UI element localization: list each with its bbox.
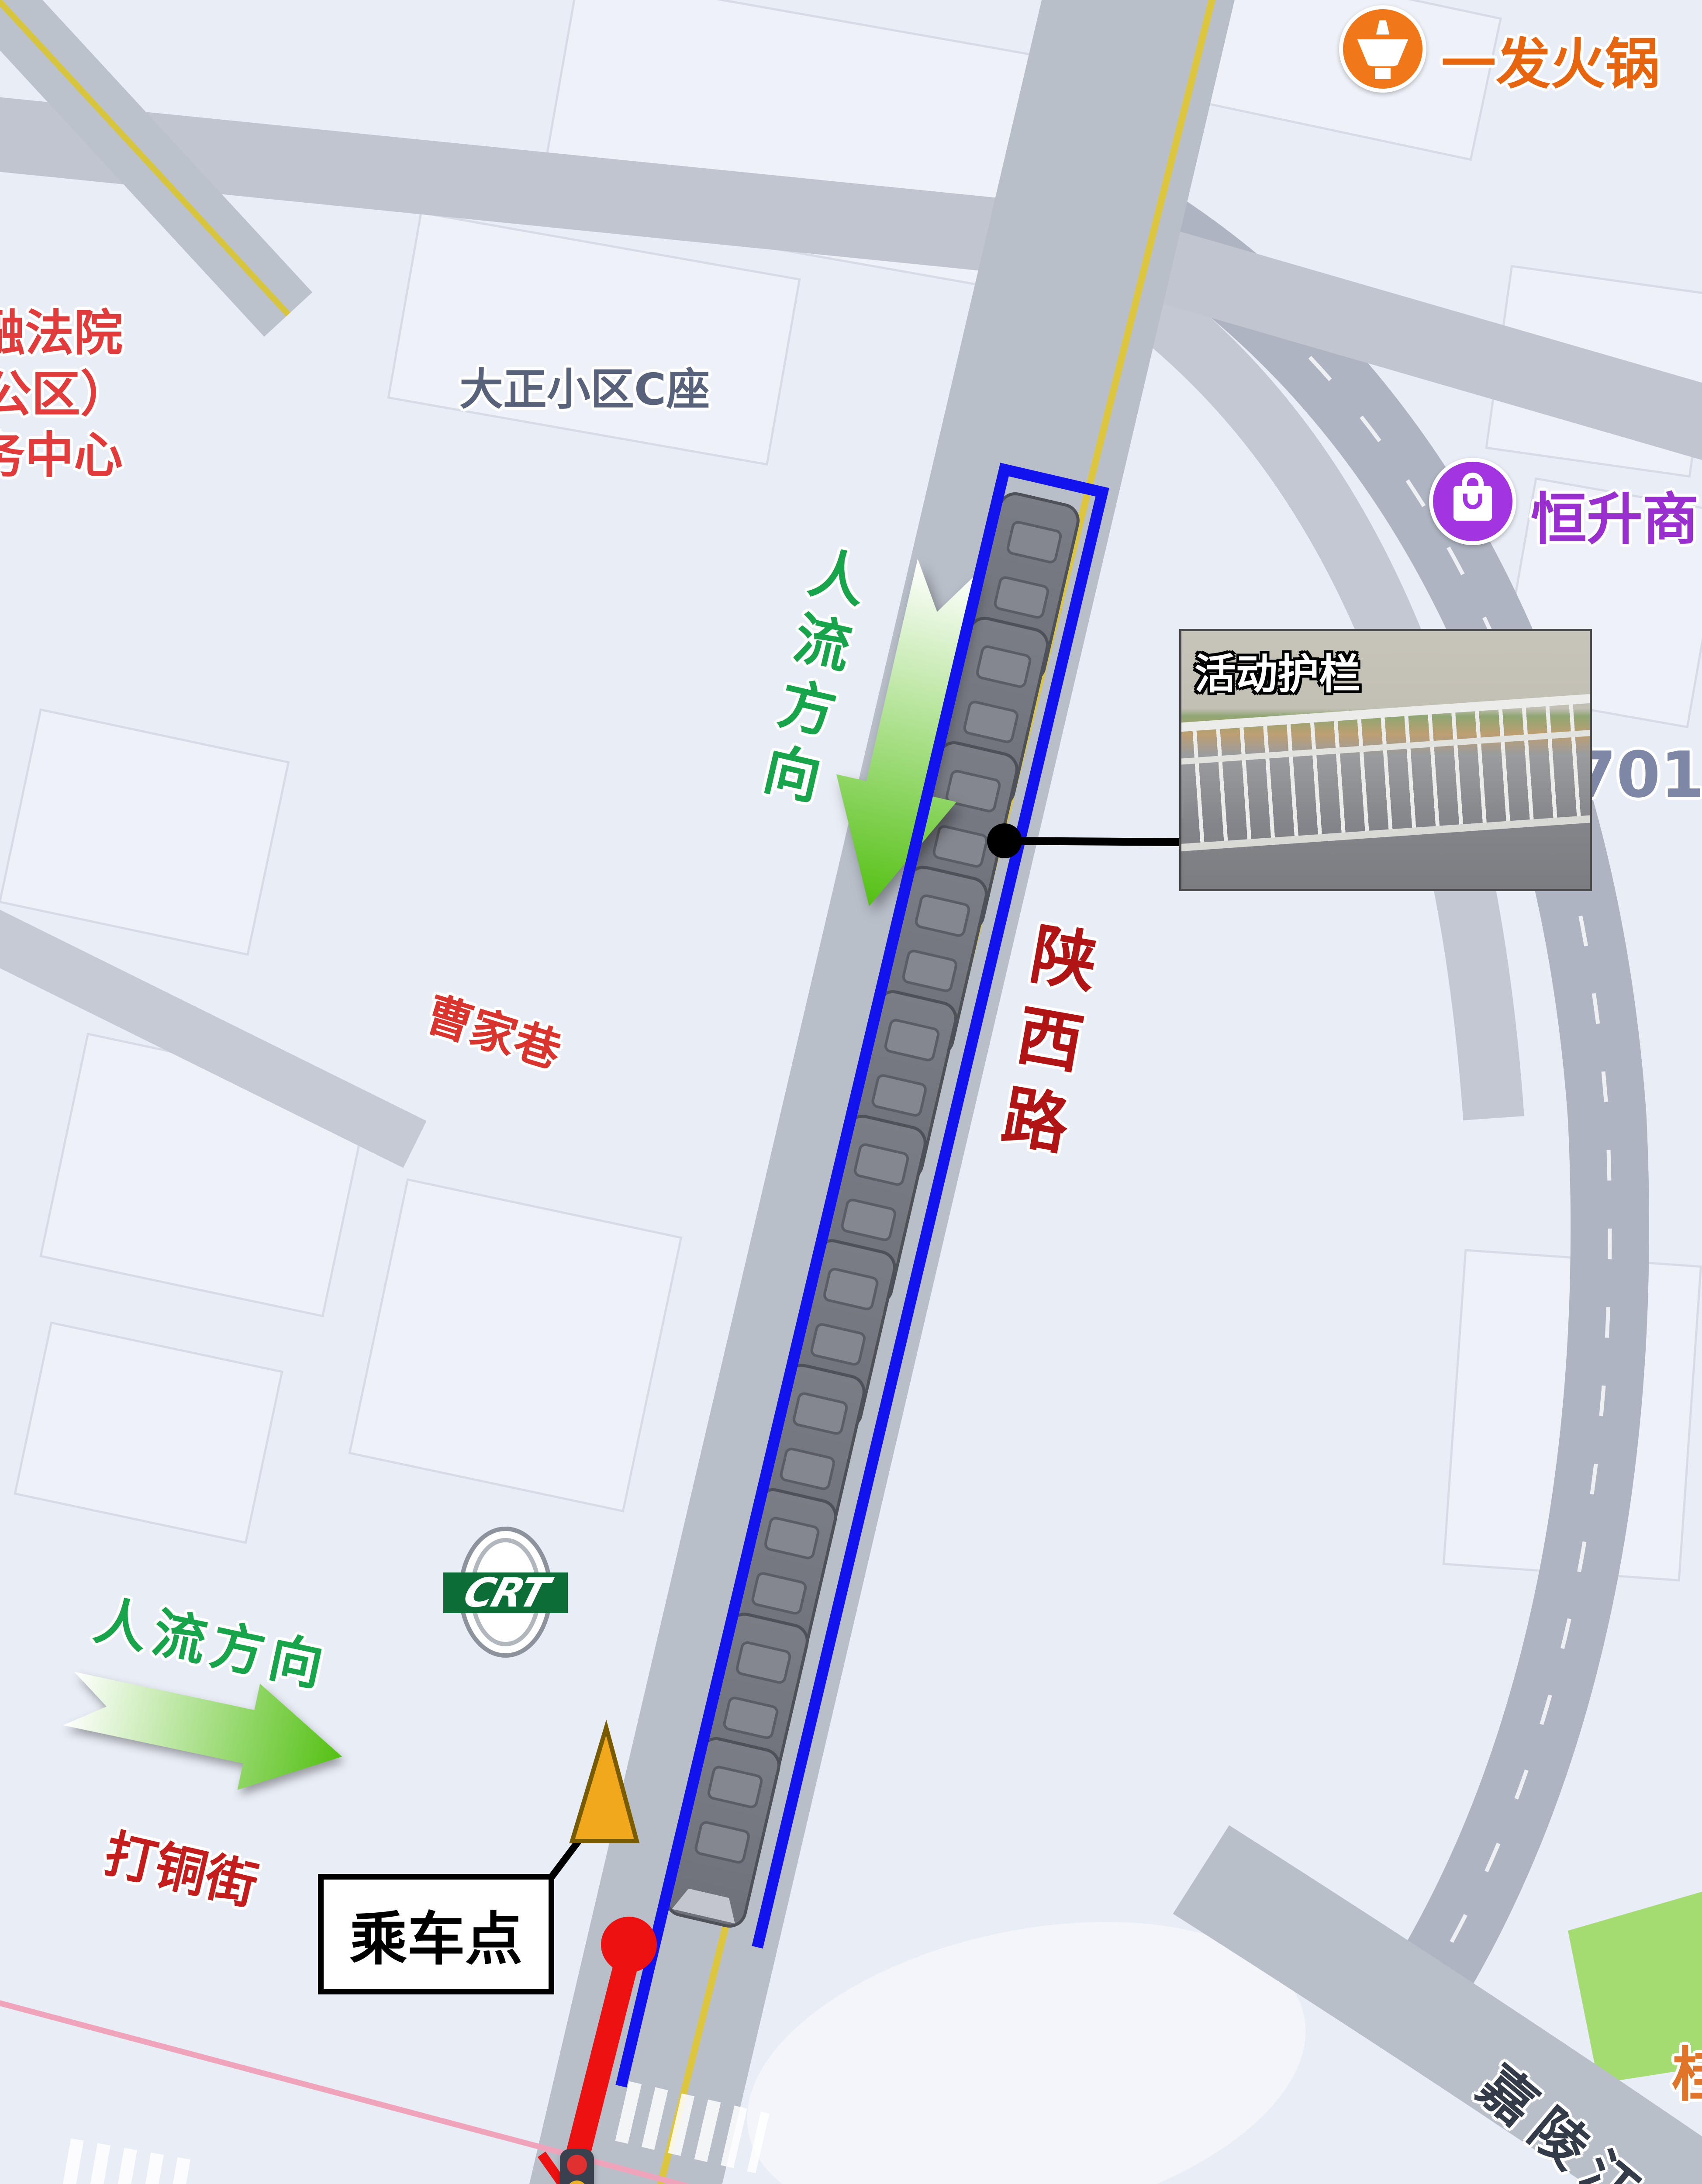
barrier-line xyxy=(621,470,1102,2086)
poi-hengsheng-label: 恒升商 xyxy=(1531,474,1699,555)
traffic-light-icon xyxy=(560,2149,594,2184)
shopping-bag-icon xyxy=(1429,458,1516,545)
barrier-callout-dot xyxy=(987,823,1022,858)
boarding-point-text: 乘车点 xyxy=(350,1893,523,1976)
hotpot-glyph xyxy=(1372,20,1394,35)
boarding-point-triangle xyxy=(572,1728,637,1841)
transit-map: CRT 融法院 公区） 务中心 大正小区C座 曹家巷 陕西路 人流方向 人流方向… xyxy=(0,0,1702,2184)
barrier-fence xyxy=(1179,694,1592,873)
annotation-overlay xyxy=(0,0,1702,2184)
barrier-photo-label: 活动护栏 xyxy=(1195,641,1360,701)
boarding-point-callout: 乘车点 xyxy=(318,1874,554,1994)
barrier-photo: 活动护栏 xyxy=(1179,629,1592,891)
hotpot-icon xyxy=(1339,5,1426,93)
poi-hotpot-label: 一发火锅 xyxy=(1441,20,1660,99)
